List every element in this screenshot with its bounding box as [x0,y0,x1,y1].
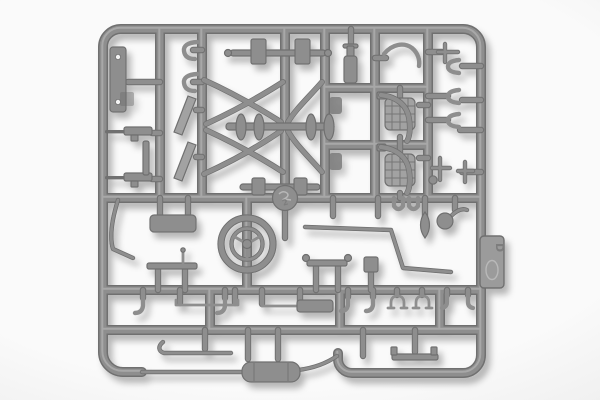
small-block [364,257,378,272]
hook-peg [366,295,373,311]
rifle-part [105,127,152,141]
platform-strip [147,248,197,269]
windshield-blade [174,142,196,181]
hook-peg [135,296,143,313]
c-clamp [448,114,459,127]
muffler [242,362,300,382]
windshield-blade [174,96,196,135]
id-tab: D [480,236,506,288]
c-clamp [448,60,459,73]
tab-marking: D [493,243,506,252]
spring-pod [236,114,246,140]
plate-hole [115,99,120,104]
sprue-photo: 2 [0,0,600,400]
center-boss: 2 [273,186,298,211]
sprue-scene: 2 [0,0,600,400]
c-clamp [448,90,459,103]
mirror-ball [437,213,453,229]
leaf-spring-bar [303,255,352,267]
cylinder-block [150,215,196,232]
plate-hole [115,54,120,59]
boomerang-strip [384,45,419,66]
wheel-hub [243,240,252,249]
sprue: 2 [102,28,506,382]
rifle-joining-bracket [143,141,149,175]
spring-pod [254,114,264,140]
spring-pod [306,114,316,140]
bottle-shaped-part [343,44,358,83]
axle-leaf-spring-assembly [204,114,334,195]
t-bracket [458,162,473,182]
axle-leaf-spring-assembly [204,39,332,124]
spring-pod [324,114,334,140]
sleeve-rod [262,300,333,312]
